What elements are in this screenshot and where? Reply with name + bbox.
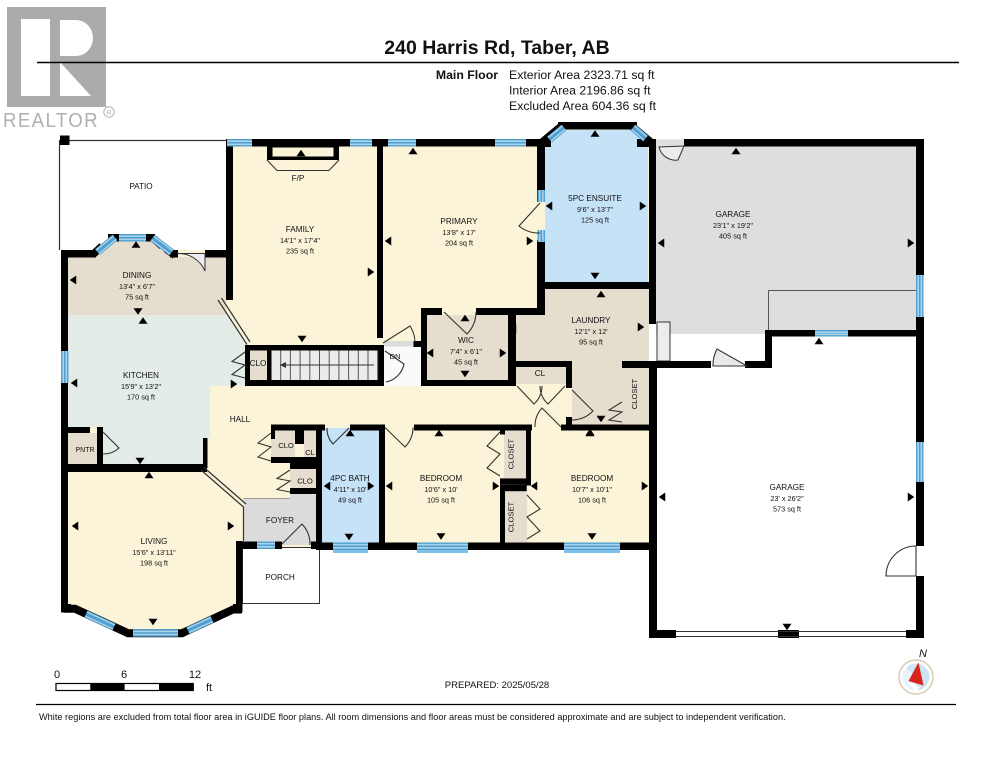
svg-text:573 sq ft: 573 sq ft: [773, 505, 801, 514]
svg-text:7'4" x 6'1": 7'4" x 6'1": [450, 347, 482, 356]
svg-text:CLOSET: CLOSET: [507, 438, 516, 469]
svg-text:White regions are excluded fro: White regions are excluded from total fl…: [39, 712, 786, 722]
svg-text:95 sq ft: 95 sq ft: [579, 338, 603, 347]
svg-text:15'9" x 13'2": 15'9" x 13'2": [121, 382, 161, 391]
svg-text:CLOSET: CLOSET: [507, 501, 516, 532]
svg-text:PREPARED: 2025/05/28: PREPARED: 2025/05/28: [445, 680, 549, 691]
svg-text:LIVING: LIVING: [141, 537, 168, 546]
svg-text:PRIMARY: PRIMARY: [440, 217, 478, 226]
svg-text:106 sq ft: 106 sq ft: [578, 496, 606, 505]
svg-text:GARAGE: GARAGE: [769, 483, 805, 492]
svg-text:405 sq ft: 405 sq ft: [719, 232, 747, 241]
svg-text:49 sq ft: 49 sq ft: [338, 496, 362, 505]
svg-text:9'6" x 13'7": 9'6" x 13'7": [577, 205, 613, 214]
svg-text:PNTR: PNTR: [75, 447, 94, 454]
svg-text:12'1" x 12': 12'1" x 12': [574, 327, 608, 336]
svg-text:FOYER: FOYER: [266, 516, 294, 525]
svg-text:10'6" x 10': 10'6" x 10': [424, 485, 458, 494]
svg-text:CL: CL: [305, 448, 315, 457]
svg-text:REALTOR: REALTOR: [3, 109, 99, 132]
svg-text:12: 12: [189, 669, 201, 681]
svg-text:WIC: WIC: [458, 336, 474, 345]
svg-text:KITCHEN: KITCHEN: [123, 371, 159, 380]
svg-text:240 Harris Rd, Taber, AB: 240 Harris Rd, Taber, AB: [384, 37, 609, 59]
svg-text:13'4" x 6'7": 13'4" x 6'7": [119, 282, 155, 291]
svg-text:Interior Area 2196.86 sq ft: Interior Area 2196.86 sq ft: [509, 84, 651, 98]
svg-text:Exterior Area 2323.71 sq ft: Exterior Area 2323.71 sq ft: [509, 68, 655, 82]
svg-text:6: 6: [121, 669, 127, 681]
svg-text:PORCH: PORCH: [265, 573, 295, 582]
svg-text:N: N: [919, 648, 927, 660]
svg-text:LAUNDRY: LAUNDRY: [572, 316, 612, 325]
svg-text:0: 0: [54, 669, 60, 681]
svg-text:13'8" x 17': 13'8" x 17': [442, 228, 476, 237]
svg-text:5PC ENSUITE: 5PC ENSUITE: [568, 194, 622, 203]
svg-text:BEDROOM: BEDROOM: [420, 474, 462, 483]
svg-text:ft: ft: [206, 682, 212, 694]
svg-text:FAMILY: FAMILY: [286, 225, 315, 234]
svg-text:DN: DN: [390, 352, 401, 361]
svg-text:105 sq ft: 105 sq ft: [427, 496, 455, 505]
svg-text:235 sq ft: 235 sq ft: [286, 247, 314, 256]
svg-text:CLO: CLO: [278, 441, 294, 450]
svg-text:23'1" x 19'2": 23'1" x 19'2": [713, 221, 753, 230]
svg-text:23' x 26'2": 23' x 26'2": [770, 494, 804, 503]
svg-text:CL: CL: [535, 369, 546, 378]
svg-text:CLO: CLO: [297, 477, 313, 486]
svg-text:GARAGE: GARAGE: [715, 210, 751, 219]
svg-text:R: R: [106, 110, 111, 117]
svg-text:4PC BATH: 4PC BATH: [330, 474, 370, 483]
svg-text:170 sq ft: 170 sq ft: [127, 393, 155, 402]
svg-text:15'6" x 13'11": 15'6" x 13'11": [132, 548, 176, 557]
svg-text:Main Floor: Main Floor: [436, 68, 498, 82]
svg-text:75 sq ft: 75 sq ft: [125, 293, 149, 302]
svg-text:Excluded Area 604.36 sq ft: Excluded Area 604.36 sq ft: [509, 99, 657, 113]
svg-text:204 sq ft: 204 sq ft: [445, 239, 473, 248]
svg-text:BEDROOM: BEDROOM: [571, 474, 613, 483]
svg-text:HALL: HALL: [230, 415, 251, 424]
svg-text:PATIO: PATIO: [129, 182, 152, 191]
svg-text:10'7" x 10'1": 10'7" x 10'1": [572, 485, 612, 494]
svg-text:14'1" x 17'4": 14'1" x 17'4": [280, 236, 320, 245]
svg-text:45 sq ft: 45 sq ft: [454, 358, 478, 367]
svg-text:4'11" x 10': 4'11" x 10': [334, 485, 367, 494]
svg-text:198 sq ft: 198 sq ft: [140, 559, 168, 568]
svg-text:DINING: DINING: [123, 271, 152, 280]
svg-text:CLO: CLO: [250, 359, 267, 368]
svg-text:F/P: F/P: [292, 174, 305, 183]
svg-text:CLOSET: CLOSET: [630, 378, 639, 409]
svg-text:125 sq ft: 125 sq ft: [581, 216, 609, 225]
